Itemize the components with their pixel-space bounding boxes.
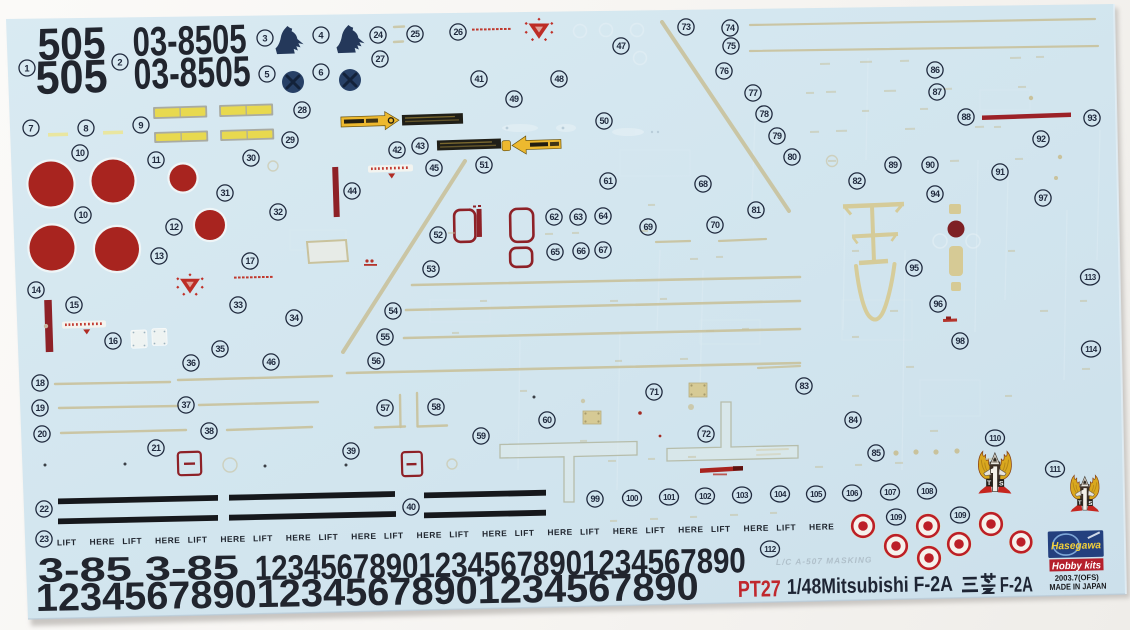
svg-text:64: 64: [598, 211, 608, 221]
svg-text:67: 67: [598, 245, 608, 255]
svg-text:HERE: HERE: [613, 525, 638, 536]
svg-text:62: 62: [549, 212, 559, 222]
svg-text:14: 14: [31, 285, 41, 295]
svg-text:LIFT: LIFT: [384, 530, 404, 540]
svg-text:37: 37: [181, 400, 191, 410]
svg-text:LIFT: LIFT: [318, 532, 338, 542]
svg-text:17: 17: [245, 256, 255, 266]
svg-text:22: 22: [39, 504, 49, 514]
svg-text:95: 95: [909, 263, 919, 273]
svg-text:25: 25: [410, 29, 420, 39]
svg-text:HERE: HERE: [482, 528, 507, 539]
svg-text:16: 16: [108, 336, 118, 346]
svg-text:Hasegawa: Hasegawa: [1051, 539, 1101, 552]
svg-text:114: 114: [1085, 345, 1097, 354]
svg-text:8: 8: [83, 123, 88, 133]
svg-text:100: 100: [626, 494, 639, 503]
svg-text:T: T: [1078, 500, 1082, 506]
svg-text:96: 96: [933, 299, 943, 309]
svg-text:73: 73: [681, 22, 691, 32]
svg-text:44: 44: [347, 186, 357, 196]
svg-text:HERE: HERE: [809, 521, 834, 532]
svg-text:60: 60: [542, 415, 552, 425]
svg-text:107: 107: [884, 488, 897, 497]
svg-text:4: 4: [318, 30, 324, 40]
svg-text:83: 83: [799, 381, 809, 391]
svg-text:112: 112: [764, 545, 776, 554]
svg-text:81: 81: [751, 205, 761, 215]
svg-text:89: 89: [888, 160, 898, 170]
svg-text:PT27: PT27: [738, 575, 781, 602]
svg-text:Hobby kits: Hobby kits: [1052, 560, 1102, 572]
svg-text:LIFT: LIFT: [776, 522, 796, 532]
svg-text:3: 3: [262, 33, 267, 43]
svg-text:23: 23: [39, 534, 49, 544]
svg-text:61: 61: [603, 176, 613, 186]
svg-text:31: 31: [220, 188, 230, 198]
svg-text:35: 35: [215, 344, 225, 354]
svg-text:13: 13: [154, 251, 164, 261]
svg-text:72: 72: [701, 429, 711, 439]
svg-text:HERE: HERE: [547, 527, 572, 538]
svg-text:1/48Mitsubishi F-2A: 1/48Mitsubishi F-2A: [787, 572, 953, 599]
svg-text:LIFT: LIFT: [711, 524, 731, 534]
svg-text:111: 111: [1050, 465, 1062, 474]
svg-text:90: 90: [925, 160, 935, 170]
svg-text:26: 26: [453, 27, 463, 37]
svg-text:69: 69: [643, 222, 653, 232]
svg-text:15: 15: [69, 300, 79, 310]
svg-text:505: 505: [35, 49, 108, 104]
svg-text:104: 104: [774, 490, 787, 499]
svg-text:101: 101: [663, 493, 676, 502]
svg-text:32: 32: [273, 207, 283, 217]
svg-text:38: 38: [204, 426, 214, 436]
svg-text:19: 19: [35, 403, 45, 413]
svg-text:46: 46: [266, 357, 276, 367]
svg-text:82: 82: [852, 176, 862, 186]
svg-text:77: 77: [748, 88, 758, 98]
svg-text:LIFT: LIFT: [449, 529, 469, 539]
svg-text:113: 113: [1084, 273, 1096, 282]
svg-text:1: 1: [24, 63, 29, 73]
svg-text:LIFT: LIFT: [122, 536, 142, 546]
svg-text:10: 10: [75, 148, 85, 158]
svg-text:75: 75: [726, 41, 736, 51]
svg-text:85: 85: [871, 448, 881, 458]
svg-text:92: 92: [1036, 134, 1046, 144]
svg-text:50: 50: [599, 116, 609, 126]
svg-text:HERE: HERE: [678, 524, 703, 535]
svg-text:76: 76: [719, 66, 729, 76]
svg-text:53: 53: [426, 264, 436, 274]
svg-text:110: 110: [989, 434, 1001, 443]
svg-text:54: 54: [388, 306, 398, 316]
svg-text:33: 33: [233, 300, 243, 310]
svg-text:94: 94: [930, 189, 940, 199]
svg-text:HERE: HERE: [744, 523, 769, 534]
svg-text:40: 40: [406, 502, 416, 512]
svg-text:55: 55: [380, 332, 390, 342]
svg-text:109: 109: [954, 511, 967, 520]
svg-text:29: 29: [285, 135, 295, 145]
svg-text:103: 103: [736, 491, 749, 500]
svg-text:LIFT: LIFT: [253, 533, 273, 543]
svg-text:LIFT: LIFT: [645, 525, 665, 535]
svg-text:43: 43: [415, 141, 425, 151]
svg-text:21: 21: [151, 443, 161, 453]
svg-text:6: 6: [318, 67, 323, 77]
svg-text:56: 56: [371, 356, 381, 366]
svg-text:9: 9: [138, 120, 143, 130]
svg-text:48: 48: [554, 74, 564, 84]
svg-text:LIFT: LIFT: [188, 534, 208, 544]
svg-text:65: 65: [550, 247, 560, 257]
svg-text:84: 84: [848, 415, 858, 425]
svg-text:102: 102: [699, 492, 712, 501]
svg-text:97: 97: [1038, 193, 1048, 203]
svg-text:45: 45: [429, 163, 439, 173]
svg-text:10: 10: [78, 210, 88, 220]
svg-text:108: 108: [921, 487, 934, 496]
svg-text:86: 86: [930, 65, 940, 75]
svg-text:88: 88: [961, 112, 971, 122]
svg-text:58: 58: [431, 402, 441, 412]
svg-text:HERE: HERE: [155, 535, 180, 546]
svg-text:105: 105: [810, 490, 823, 499]
svg-text:LIFT: LIFT: [57, 537, 77, 547]
svg-text:98: 98: [955, 336, 965, 346]
svg-text:91: 91: [995, 167, 1005, 177]
svg-text:HERE: HERE: [90, 536, 115, 547]
svg-text:57: 57: [380, 403, 390, 413]
svg-text:F-2A: F-2A: [1000, 572, 1033, 597]
svg-text:S: S: [1088, 501, 1092, 507]
svg-text:HERE: HERE: [220, 534, 245, 545]
svg-text:63: 63: [573, 212, 583, 222]
svg-text:36: 36: [186, 358, 196, 368]
svg-text:59: 59: [476, 431, 486, 441]
svg-text:LIFT: LIFT: [515, 528, 535, 538]
svg-text:68: 68: [698, 179, 708, 189]
svg-text:52: 52: [433, 230, 443, 240]
svg-text:34: 34: [289, 313, 299, 323]
svg-text:78: 78: [759, 109, 769, 119]
svg-text:12: 12: [169, 222, 179, 232]
svg-text:51: 51: [479, 160, 489, 170]
svg-text:24: 24: [373, 30, 383, 40]
svg-text:87: 87: [932, 87, 942, 97]
svg-text:HERE: HERE: [286, 532, 311, 543]
svg-text:66: 66: [576, 246, 586, 256]
svg-text:42: 42: [392, 145, 402, 155]
svg-text:5: 5: [264, 69, 269, 79]
svg-text:47: 47: [616, 41, 626, 51]
svg-text:79: 79: [772, 131, 782, 141]
svg-text:49: 49: [509, 94, 519, 104]
svg-text:LIFT: LIFT: [580, 526, 600, 536]
svg-text:HERE: HERE: [417, 530, 442, 541]
svg-text:74: 74: [725, 23, 735, 33]
svg-text:MADE IN JAPAN: MADE IN JAPAN: [1049, 581, 1106, 592]
svg-text:S: S: [999, 481, 1004, 488]
svg-text:109: 109: [890, 513, 903, 522]
svg-text:80: 80: [787, 152, 797, 162]
svg-text:20: 20: [37, 429, 47, 439]
svg-text:106: 106: [846, 489, 859, 498]
svg-text:93: 93: [1087, 113, 1097, 123]
svg-text:7: 7: [28, 123, 33, 133]
svg-text:11: 11: [152, 155, 161, 165]
svg-text:41: 41: [474, 74, 484, 84]
svg-text:18: 18: [35, 378, 45, 388]
svg-text:99: 99: [590, 494, 600, 504]
svg-text:30: 30: [246, 153, 256, 163]
svg-text:2: 2: [117, 57, 122, 67]
svg-text:28: 28: [297, 105, 307, 115]
svg-text:HERE: HERE: [351, 531, 376, 542]
svg-text:03-8505: 03-8505: [133, 48, 251, 99]
svg-text:71: 71: [649, 387, 659, 397]
svg-text:70: 70: [710, 220, 720, 230]
svg-text:39: 39: [346, 446, 356, 456]
svg-text:27: 27: [375, 54, 385, 64]
